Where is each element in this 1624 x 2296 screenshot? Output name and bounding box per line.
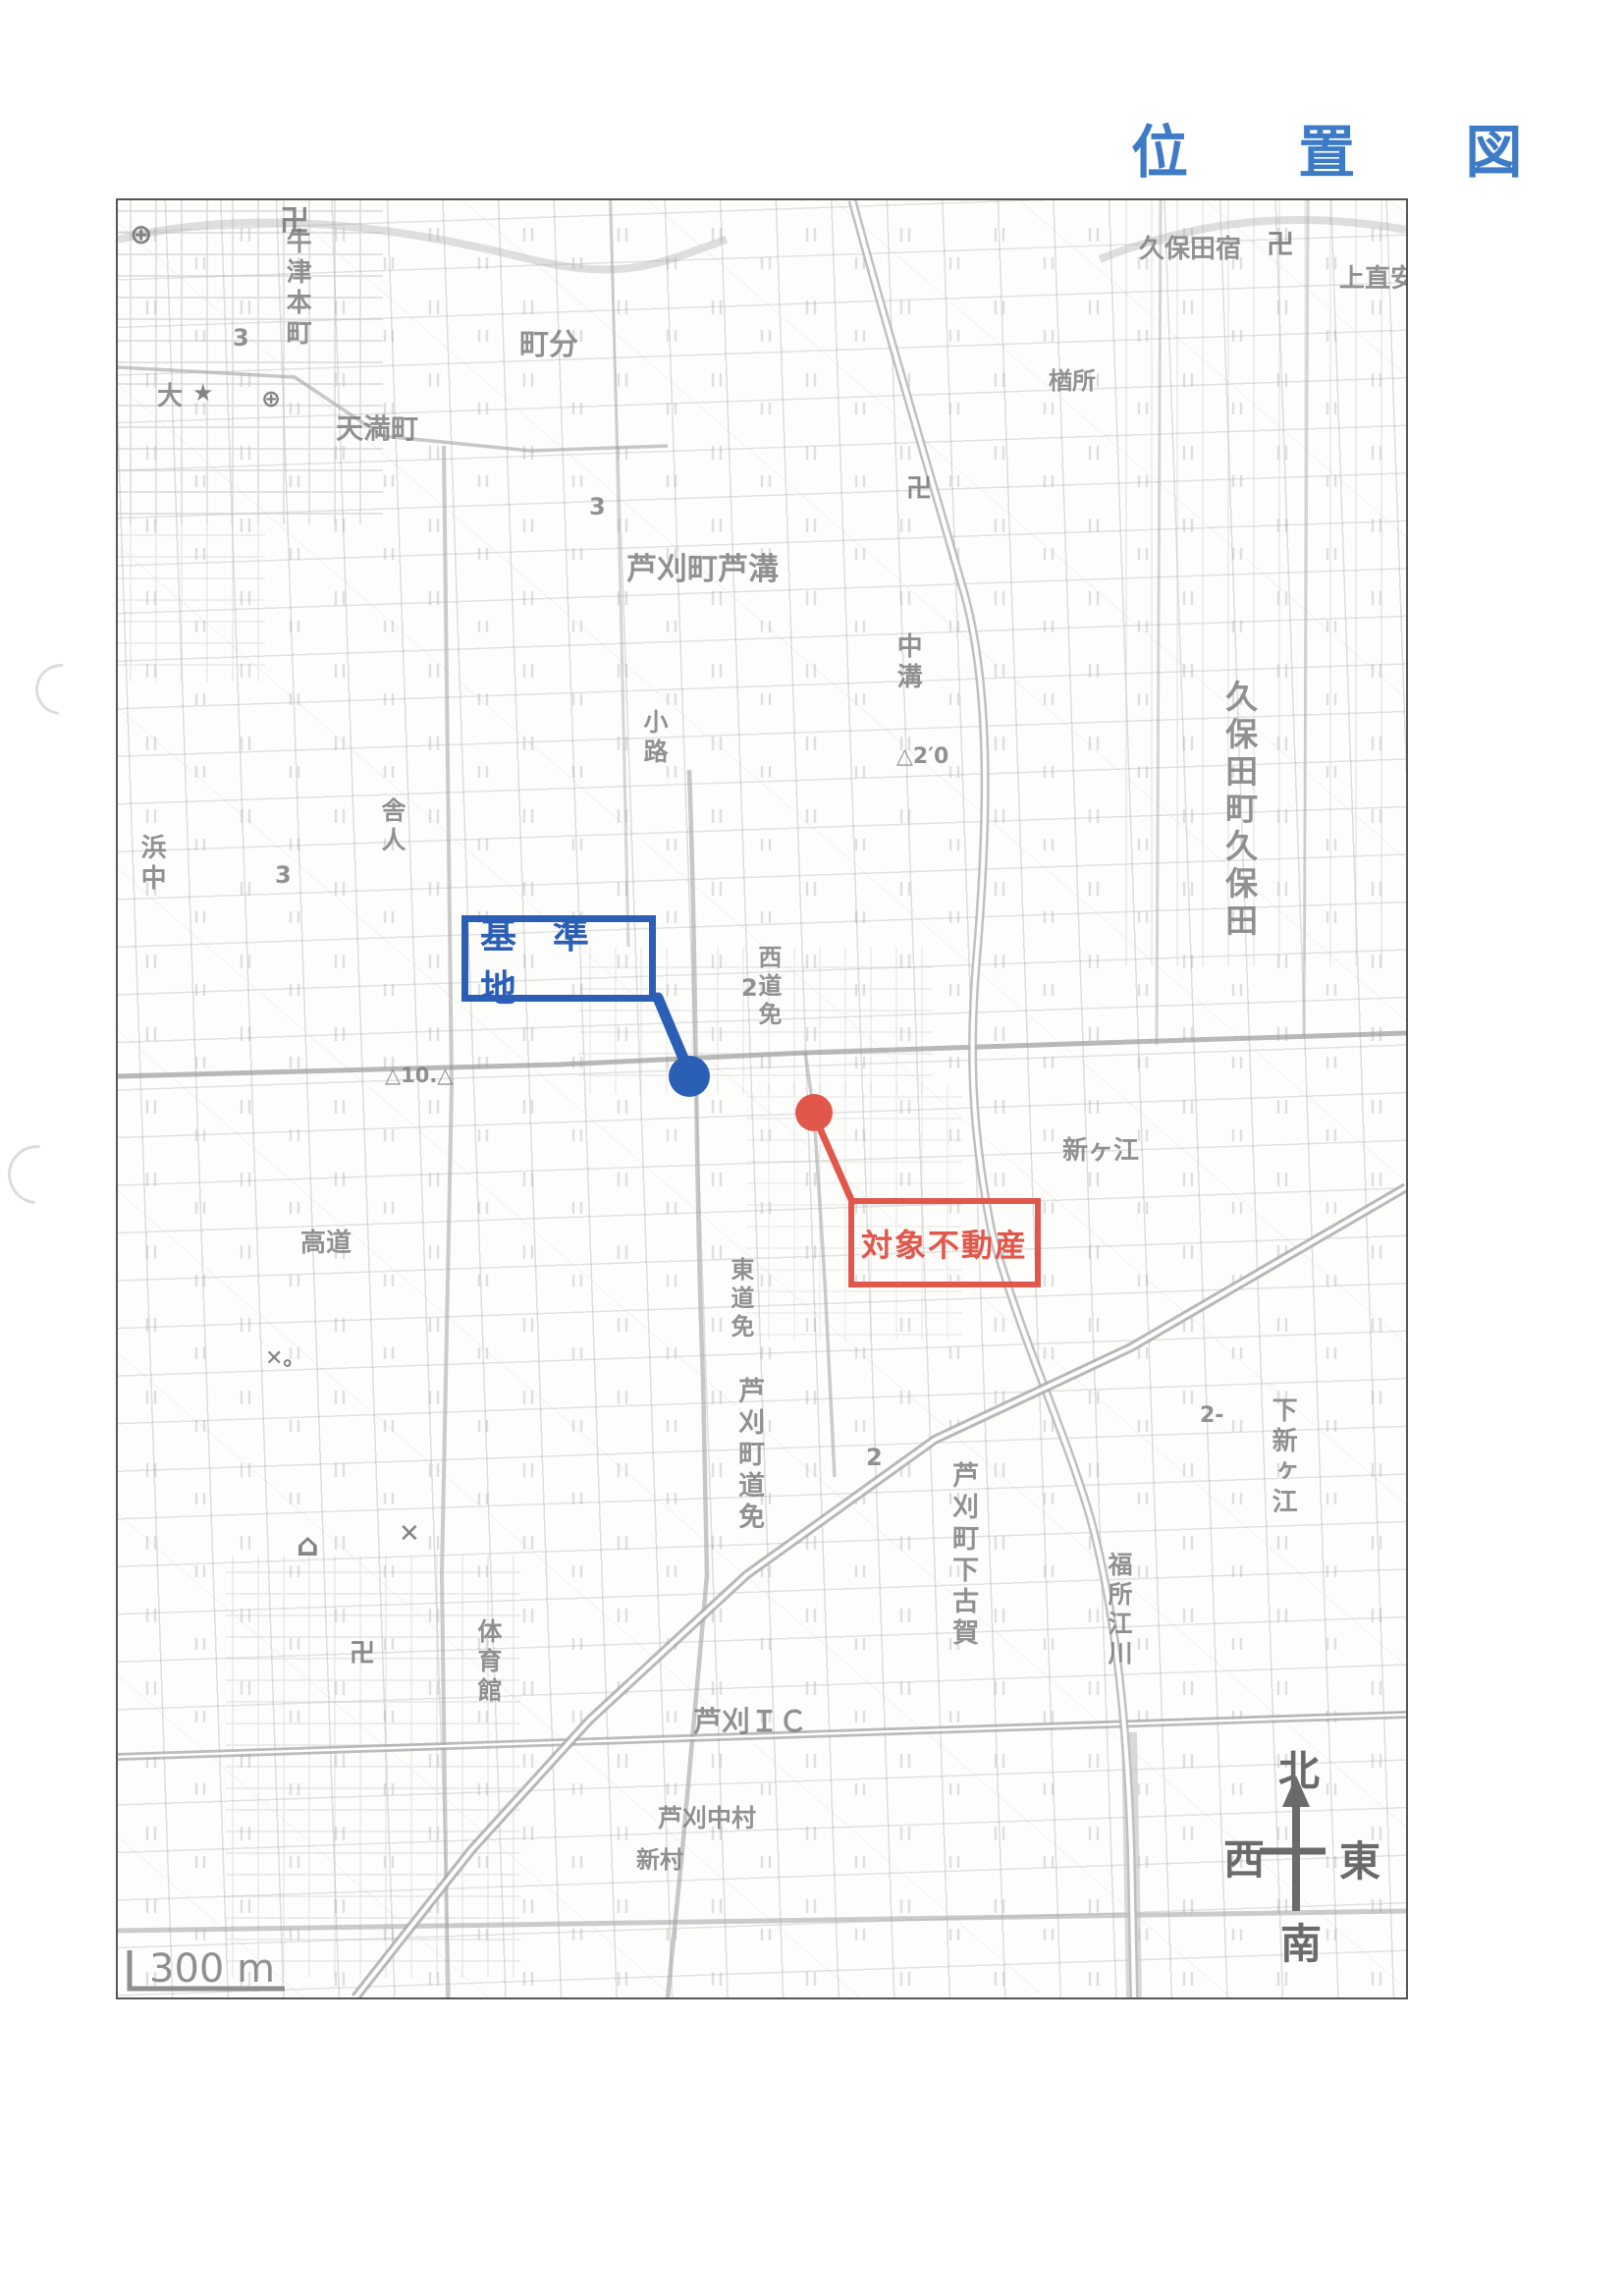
map-place-label: 中溝	[893, 632, 921, 693]
compass-west-label: 西	[1223, 1827, 1265, 1886]
map-place-label: 芦刈中村	[658, 1805, 756, 1831]
map-place-label: 町分	[519, 330, 578, 361]
map-place-label: 芦刈ＩＣ	[693, 1707, 807, 1737]
map-place-label: 3	[233, 326, 249, 352]
scale-bar-label: 300 m	[149, 1946, 275, 1992]
map-place-label: 2	[741, 976, 758, 1002]
map-place-label: 卍	[1267, 230, 1294, 259]
map-place-label: 卍	[280, 206, 309, 238]
map-place-label: △10.△	[385, 1065, 454, 1087]
map-place-label: 高道	[300, 1230, 352, 1257]
map-place-label: 西道免	[754, 945, 780, 1030]
map-place-label: ⊕	[261, 387, 281, 412]
map-place-label: 楢所	[1049, 369, 1096, 395]
scanned-location-map-page: { "title": "位 置 図", "markers": { "refere…	[0, 0, 1624, 2296]
map-place-label: ★	[192, 381, 214, 407]
map-place-label: ⌂	[297, 1528, 319, 1562]
map-place-label: ✕	[399, 1520, 420, 1548]
map-place-label: 芦刈町道免	[734, 1377, 763, 1534]
subject-property-label: 対象不動産	[861, 1221, 1028, 1266]
map-place-label: 芦刈町芦溝	[626, 554, 779, 586]
map-place-label: 福所江川	[1106, 1552, 1132, 1669]
page-title: 位 置 図	[1131, 106, 1567, 189]
punch-hole-artifact	[0, 1133, 79, 1217]
map-place-label: 新村	[636, 1848, 683, 1874]
map-place-label: 下新ヶ江	[1269, 1396, 1296, 1518]
subject-property-dot	[795, 1094, 833, 1131]
paddy-strips-right	[1119, 200, 1406, 966]
map-place-label: 天満町	[336, 414, 418, 444]
map-place-label: ✕。	[265, 1347, 304, 1371]
location-map: 町分牛津本町天満町大3久保田宿上直安楢所卍卍卍芦刈町芦溝3中溝小路舎人浜中3△2…	[116, 198, 1408, 1999]
reference-point-dot	[669, 1056, 710, 1097]
urban-area-topleft	[118, 200, 383, 524]
map-place-label: 卍	[350, 1640, 375, 1667]
map-place-label: 2-	[1200, 1404, 1223, 1428]
compass-east-label: 東	[1339, 1829, 1380, 1888]
map-place-label: 大	[157, 383, 183, 410]
map-place-label: 牛津本町	[283, 228, 310, 350]
punch-hole-artifact	[25, 653, 96, 725]
map-place-label: 小路	[641, 709, 668, 768]
map-place-label: ⊕	[130, 220, 152, 249]
compass-south-label: 南	[1280, 1911, 1322, 1971]
map-place-label: 上直安	[1339, 265, 1408, 293]
map-place-label: 浜中	[137, 834, 165, 895]
map-place-label: 久保田町久保田	[1221, 680, 1257, 941]
map-place-label: 舎人	[379, 797, 406, 856]
map-place-label: 久保田宿	[1139, 236, 1241, 263]
map-place-label: 体育館	[475, 1618, 502, 1707]
subject-property-callout: 対象不動産	[848, 1198, 1041, 1287]
map-place-label: 東道免	[727, 1257, 752, 1342]
compass-north-label: 北	[1278, 1738, 1320, 1798]
map-place-label: 新ヶ江	[1062, 1137, 1139, 1165]
map-place-label: 2	[866, 1446, 883, 1471]
map-place-label: 卍	[906, 475, 932, 503]
map-place-label: △2′0	[896, 745, 948, 769]
map-place-label: 芦刈町下古賀	[948, 1461, 977, 1650]
map-place-label: 3	[589, 495, 606, 520]
map-place-label: 3	[275, 863, 292, 889]
urban-area-topleft2	[118, 524, 265, 682]
reference-point-callout: 基 準 地	[461, 915, 656, 1002]
reference-point-label: 基 準 地	[480, 905, 649, 1011]
